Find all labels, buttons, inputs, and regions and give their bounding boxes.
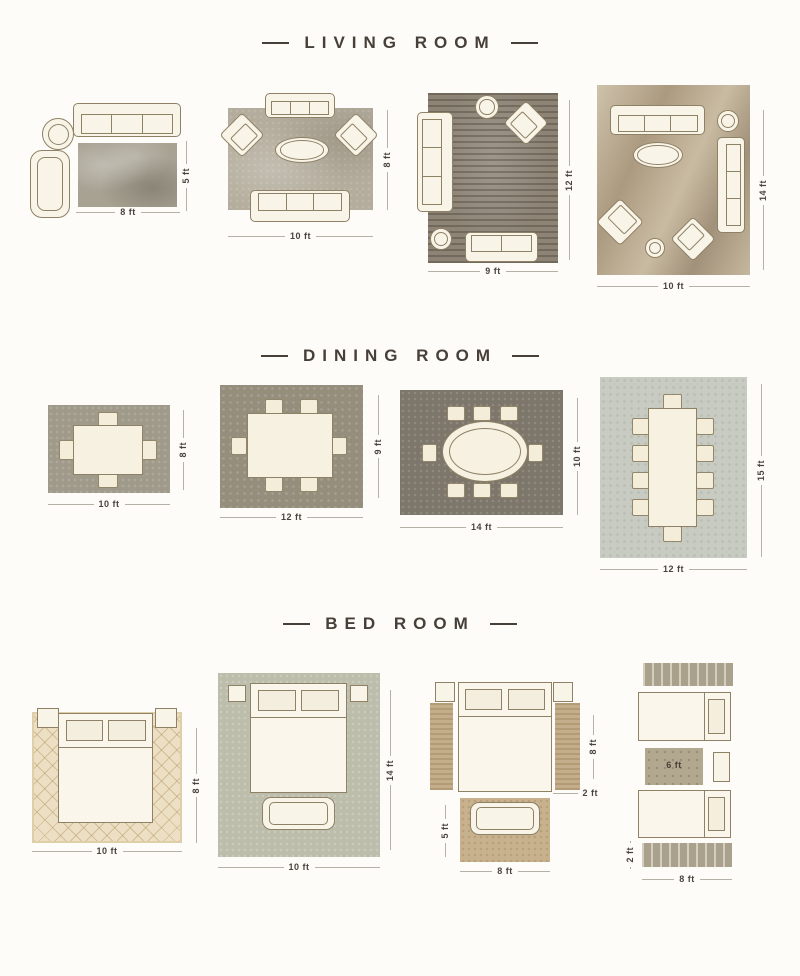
dimension-label: 9 ft [373,435,383,459]
living-room-layout-2: 10 ft 8 ft [225,85,395,250]
rug-height-dimension: 5 ft [180,141,192,211]
dimension-label: 8 ft [178,438,188,462]
nightstand-icon [435,682,455,702]
dining-chair-icon [500,483,518,498]
dining-chair-icon [696,445,714,462]
bed-room-layout-1: 10 ft 8 ft [30,700,210,862]
dimension-label: 8 ft [588,735,598,759]
dimension-line [141,212,180,213]
dimension-label: 10 ft [92,846,123,856]
dining-chair-icon [473,406,491,421]
dimension-line [763,110,764,176]
bed-icon [250,683,347,793]
dining-chair-icon [300,476,318,492]
bed-icon [58,713,153,823]
sofa-icon [417,112,453,212]
pillow-row [465,689,544,710]
sofa-cushion [310,102,328,114]
dimension-line [218,867,284,868]
rug-height-dimension: 12 ft [563,100,575,260]
rug-height-dimension: 8 ft [381,110,393,210]
bed-cover-line [704,693,705,740]
bed-room-layout-4: 6 ft 2 ft 8 ft [622,655,782,895]
chaise-icon [30,150,70,218]
sofa-seats [81,114,172,134]
dimension-line [506,271,558,272]
dimension-line [387,172,388,210]
sofa-seats [618,115,698,132]
dimension-line [689,286,750,287]
dimension-label: 9 ft [480,266,506,276]
dimension-line [378,458,379,498]
dining-table-icon [648,408,697,527]
rug-width-dimension: 10 ft [48,499,170,509]
dimension-line [32,851,92,852]
dining-chair-icon [447,406,465,421]
dimension-label: 2 ft [578,788,604,798]
pillow [258,690,296,711]
dining-chair-icon [231,437,247,455]
dimension-line [593,759,594,779]
pillow [66,720,103,741]
nightstand-icon [228,685,246,702]
sofa-cushion [82,115,112,133]
dining-chair-icon [500,406,518,421]
dimension-label: 14 ft [758,176,768,205]
pillow-row [258,690,340,711]
dimension-label: 8 ft [382,148,392,172]
coffee-table-icon [275,137,329,163]
dimension-line [307,517,363,518]
sofa-cushion [727,172,740,199]
living-room-layout-3: 9 ft 12 ft [415,85,580,285]
dimension-line [183,462,184,490]
dining-room-layout-2: 12 ft 9 ft [210,382,395,527]
dining-chair-icon [265,476,283,492]
nightstand-icon [350,685,368,702]
title-dash [262,42,289,44]
runner-rug [430,703,453,790]
dimension-line [387,110,388,148]
dimension-label: 10 ft [284,862,315,872]
dining-chair-icon [696,418,714,435]
pillow-row [66,720,146,741]
sofa-cushion [472,236,501,251]
bench-icon [262,797,335,830]
rug-size-guide-infographic: LIVING ROOM 8 ft 5 ft [0,0,800,976]
bed-cover-line [704,791,705,837]
runner-rug [555,703,580,790]
dimension-line [630,867,631,869]
runner-rug [642,843,732,867]
plant-icon [475,95,499,119]
coffee-table-icon [633,142,683,168]
loveseat-icon [465,232,538,262]
twin-bed-icon [638,692,731,741]
sofa-cushion [143,115,172,133]
title-dash [283,623,310,625]
bed-cover-line [251,717,346,718]
nightstand-icon [155,708,177,728]
dimension-line [378,395,379,435]
dimension-line [228,236,285,237]
sofa-seats [271,101,330,115]
rug-height-dimension: 10 ft [571,398,583,515]
sofa-cushion [291,102,310,114]
round-table-icon [430,228,452,250]
bed-cover-line [459,716,551,717]
sofa-icon [73,103,181,137]
dimension-line [597,286,658,287]
dimension-label: 10 ft [94,499,125,509]
rug-height-dimension: 8 ft [190,728,202,843]
dimension-line [428,271,480,272]
dimension-line [186,188,187,211]
round-side-table-icon [717,110,739,132]
dining-chair-icon [528,444,543,462]
runner-rug [643,663,733,686]
title-dash [512,355,539,357]
bed-icon [458,682,552,792]
dimension-line [700,879,732,880]
sofa-cushion [259,194,286,210]
living-room-title: LIVING ROOM [0,33,800,53]
dining-room-title: DINING ROOM [0,346,800,366]
dining-chair-icon [663,526,682,542]
dining-chair-icon [141,440,157,460]
pillow [708,699,725,735]
dimension-label: 12 ft [658,564,689,574]
round-table-icon [645,238,665,258]
rug-height-dimension: 9 ft [372,395,384,498]
title-dash [490,623,517,625]
section-title-text: BED ROOM [325,614,475,634]
dimension-label: 14 ft [385,756,395,785]
dimension-line [220,517,276,518]
sofa-icon [250,190,350,222]
dimension-line [642,879,674,880]
sofa-cushion [272,102,291,114]
dimension-line [460,871,492,872]
rug-width-dimension: 12 ft [220,512,363,522]
dimension-label: 8 ft [674,874,700,884]
dimension-line [593,715,594,735]
rug [78,143,177,207]
dimension-label: 5 ft [440,819,450,843]
oval-dining-table-icon [442,421,528,482]
sofa-cushion [112,115,142,133]
bench-icon [470,802,540,835]
runner-width-dimension: 8 ft [642,874,732,884]
rug-width-dimension: 10 ft [218,862,380,872]
dimension-label: 12 ft [276,512,307,522]
pillow [708,797,725,832]
dining-chair-icon [447,483,465,498]
dining-room-layout-4: 12 ft 15 ft [595,372,780,582]
dimension-label: 10 ft [572,442,582,471]
living-room-layout-4: 10 ft 14 ft [585,75,780,295]
sofa-cushion [286,194,314,210]
dimension-label: 10 ft [285,231,316,241]
dimension-label: 10 ft [658,281,689,291]
dining-chair-icon [473,483,491,498]
sofa-cushion [313,194,341,210]
dimension-line [569,195,570,261]
sofa-cushion [423,148,441,176]
dining-table-icon [73,425,143,475]
dimension-label: 2 ft [625,843,635,867]
dining-table-icon [247,413,333,478]
sofa-icon [610,105,705,135]
sofa-icon [265,93,335,118]
dining-chair-icon [422,444,437,462]
rug-width-dimension: 12 ft [600,564,747,574]
rug-width-dimension: 14 ft [400,522,563,532]
foot-rug-width-dimension: 8 ft [460,866,550,876]
sofa-cushion [645,116,671,131]
dimension-line [445,843,446,857]
dining-chair-icon [331,437,347,455]
runner-height-dimension: 2 ft [624,841,636,869]
dimension-line [518,871,550,872]
rug-width-dimension: 8 ft [76,207,180,217]
bed-room-title: BED ROOM [0,614,800,634]
dimension-line [763,205,764,271]
dimension-line [390,690,391,756]
dimension-label: 15 ft [756,456,766,485]
dimension-line [761,485,762,557]
rug-size-label: 6 ft [645,760,703,770]
dimension-label: 8 ft [191,774,201,798]
rug-height-dimension: 15 ft [755,384,767,557]
rug-height-dimension: 14 ft [384,690,396,850]
dining-room-layout-1: 10 ft 8 ft [45,400,195,515]
dimension-label: 14 ft [466,522,497,532]
sofa-cushion [671,116,696,131]
section-title-text: LIVING ROOM [304,33,495,53]
sofa-cushion [727,199,740,225]
rug-width-dimension: 10 ft [597,281,750,291]
dimension-line [600,569,658,570]
bed-room-layout-3: 8 ft 2 ft 5 ft 8 ft [425,670,615,885]
runner-width-dimension: 2 ft [553,788,603,798]
dimension-line [553,793,578,794]
bed-cover-line [59,747,152,748]
dimension-line [761,384,762,456]
armchair-seat [677,223,705,251]
dimension-label: 12 ft [564,166,574,195]
round-side-table-icon [42,118,74,150]
sofa-seats [726,144,741,227]
sofa-cushion [501,236,531,251]
dimension-line [497,527,563,528]
dimension-line [445,805,446,819]
dimension-line [400,527,466,528]
dimension-line [390,785,391,851]
living-room-layout-1: 8 ft 5 ft [28,95,203,235]
sofa-cushion [619,116,645,131]
rug-height-dimension: 8 ft [177,410,189,490]
dimension-line [316,236,373,237]
pillow [301,690,339,711]
dimension-line [569,100,570,166]
runner-length-dimension: 8 ft [587,715,599,779]
sofa-seats [471,235,532,252]
dimension-label: 8 ft [492,866,518,876]
dining-room-layout-3: 14 ft 10 ft [395,388,590,536]
rug-height-dimension: 14 ft [757,110,769,270]
pillow [508,689,545,710]
foot-rug-height-dimension: 5 ft [439,805,451,857]
sofa-seats [258,193,342,211]
sofa-seats [422,119,442,205]
dining-chair-icon [696,472,714,489]
dimension-line [125,504,171,505]
twin-bed-icon [638,790,731,838]
dimension-line [48,504,94,505]
dimension-label: 8 ft [115,207,141,217]
dimension-label: 5 ft [181,164,191,188]
section-title-text: DINING ROOM [303,346,497,366]
dimension-line [196,797,197,843]
dimension-line [315,867,381,868]
sofa-cushion [727,145,740,172]
nightstand-icon [713,752,730,782]
bed-room-layout-2: 10 ft 14 ft [210,665,405,875]
dimension-line [76,212,115,213]
pillow [465,689,502,710]
dimension-line [186,141,187,164]
nightstand-icon [553,682,573,702]
dimension-line [196,728,197,774]
title-dash [261,355,288,357]
dimension-line [689,569,747,570]
nightstand-icon [37,708,59,728]
rug-width-dimension: 9 ft [428,266,558,276]
dimension-line [577,398,578,442]
sofa-cushion [423,120,441,148]
rug-width-dimension: 10 ft [32,846,182,856]
dimension-line [123,851,183,852]
dimension-line [577,471,578,515]
rug-width-dimension: 10 ft [228,231,373,241]
dining-chair-icon [696,499,714,516]
sofa-cushion [423,177,441,204]
pillow [108,720,145,741]
sofa-icon [717,137,745,233]
title-dash [511,42,538,44]
dimension-line [183,410,184,438]
